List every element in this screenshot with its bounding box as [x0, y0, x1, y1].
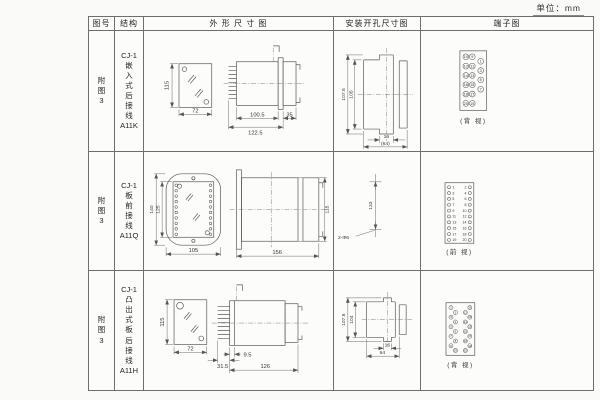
svg-text:18: 18: [464, 339, 468, 343]
svg-text:16: 16: [464, 83, 468, 87]
svg-text:17: 17: [452, 232, 456, 236]
hole-pitch: 133 2-Φ6: [338, 174, 381, 241]
dim-label: 16: [385, 342, 391, 348]
view-caption: (前 视): [446, 247, 472, 256]
svg-text:17: 17: [470, 92, 474, 96]
svg-text:1: 1: [450, 306, 452, 310]
fig-label-row1: 附 图 3: [89, 31, 115, 152]
dim-label: (64): [381, 141, 390, 147]
outline-drawing-a11q: 140 125 105 156 115: [144, 152, 333, 270]
svg-text:5: 5: [450, 325, 452, 329]
unit-label: 单位：mm: [533, 2, 584, 16]
dimension-table: 图号 结构 外 形 尺 寸 图 安装开孔尺寸图 端子图 附 图 3 CJ-1 嵌…: [88, 16, 594, 391]
outline-cell-row2: 140 125 105 156 115: [144, 152, 334, 271]
terminal-circles: 11121314151617181920: [463, 306, 471, 353]
fig-label-row3: 附 图 3: [89, 271, 115, 391]
terminal-circles: 2468101214161820: [462, 185, 471, 242]
svg-text:13: 13: [452, 221, 456, 225]
dim-label: 72: [192, 108, 198, 114]
dim-label: 126: [260, 364, 270, 370]
hole-note: 2-Φ6: [338, 235, 349, 241]
svg-text:1: 1: [480, 60, 482, 64]
svg-text:15: 15: [470, 83, 474, 87]
svg-text:5: 5: [480, 78, 482, 82]
svg-text:11: 11: [452, 215, 456, 219]
svg-text:7: 7: [450, 334, 452, 338]
side-view: 100.5 35 122.5: [224, 46, 305, 137]
terminal-stud-column: [175, 184, 212, 236]
outline-cell-row3: 115 72 31.5 9.5 126: [144, 271, 334, 391]
svg-text:7: 7: [480, 88, 482, 92]
terminal-cell-row3: 12345678910 11121314151617181920 (背 视): [421, 271, 594, 391]
svg-text:13: 13: [468, 315, 472, 319]
outline-drawing-a11h: 115 72 31.5 9.5 126: [144, 271, 333, 390]
svg-text:11: 11: [468, 306, 471, 310]
mount-cell-row2: 133 2-Φ6: [334, 152, 421, 271]
struct-label-row2: CJ-1 板 前 接 线 A11Q: [115, 152, 144, 271]
svg-text:9: 9: [450, 344, 452, 348]
svg-text:2: 2: [455, 310, 457, 314]
dim-label: 125: [156, 205, 162, 213]
svg-text:20: 20: [464, 102, 468, 106]
svg-text:8: 8: [464, 203, 466, 207]
svg-text:6: 6: [464, 197, 466, 201]
dim-label: 16: [384, 134, 390, 140]
svg-text:3: 3: [480, 69, 482, 73]
dim-label: 104: [349, 315, 355, 323]
svg-text:15: 15: [452, 226, 456, 230]
svg-text:14: 14: [462, 221, 466, 225]
mount-cell-row1: 107.5 105 16 (64): [334, 31, 421, 152]
terminal-circles: 135791113151719: [448, 185, 457, 242]
dim-label: 156: [272, 250, 282, 256]
svg-text:8: 8: [455, 339, 457, 343]
svg-text:10: 10: [462, 209, 466, 213]
dim-label: 100.5: [250, 112, 264, 118]
header-mount: 安装开孔尺寸图: [334, 17, 421, 31]
cutout-profile: 107.5 105 16 (64): [341, 48, 413, 149]
dim-label: 140: [149, 205, 155, 213]
terminal-diagram-a11h: 12345678910 11121314151617181920 (背 视): [421, 271, 593, 390]
dim-label: 122.5: [248, 131, 262, 137]
terminal-circles: 12345678910: [449, 306, 457, 353]
mount-drawing-a11h: 107.5 104 16 64: [334, 271, 420, 390]
struct-label-row3: CJ-1 凸 出 式 板 后 接 线 A11H: [115, 271, 144, 391]
svg-text:12: 12: [464, 310, 468, 314]
dim-label: 115: [325, 205, 331, 213]
svg-text:9: 9: [452, 209, 454, 213]
svg-text:6: 6: [455, 329, 457, 333]
mount-drawing-a11q: 133 2-Φ6: [334, 152, 420, 270]
svg-text:2: 2: [464, 185, 466, 189]
front-view: 115 72: [165, 64, 212, 117]
outline-cell-row1: 115 72 100.5 35 122.5: [144, 31, 334, 152]
front-view: 115 72: [160, 300, 207, 355]
header-fig: 图号: [89, 17, 115, 31]
dim-label: 31.5: [217, 364, 228, 370]
terminal-diagram-a11k: 101214161820 91113151719 1357 (背 视): [421, 31, 593, 151]
svg-text:3: 3: [452, 191, 454, 195]
front-view: 140 125 105: [149, 174, 220, 256]
terminal-circles: 1357: [478, 58, 484, 92]
svg-text:12: 12: [462, 215, 466, 219]
svg-text:10: 10: [464, 55, 468, 59]
struct-label-row1: CJ-1 嵌 入 式 后 接 线 A11K: [115, 31, 144, 152]
cutout-profile: 107.5 104 16 64: [341, 292, 412, 358]
view-caption: (背 视): [460, 116, 486, 125]
svg-text:10: 10: [454, 349, 458, 353]
svg-text:19: 19: [468, 344, 472, 348]
svg-text:15: 15: [468, 325, 472, 329]
svg-text:5: 5: [452, 197, 454, 201]
mount-drawing-a11k: 107.5 105 16 (64): [334, 31, 420, 151]
dim-label: 35: [286, 112, 292, 118]
fig-label-row2: 附 图 3: [89, 152, 115, 271]
svg-text:19: 19: [452, 238, 456, 242]
svg-text:20: 20: [464, 349, 468, 353]
dim-label: 133: [368, 201, 374, 209]
dim-label: 107.5: [341, 313, 347, 326]
svg-text:1: 1: [452, 185, 454, 189]
svg-text:16: 16: [462, 226, 466, 230]
terminal-diagram-a11q: 135791113151719 2468101214161820 (前 视): [421, 152, 593, 270]
outline-drawing-a11k: 115 72 100.5 35 122.5: [144, 31, 333, 151]
view-caption: (背 视): [447, 360, 473, 369]
svg-text:7: 7: [452, 203, 454, 207]
terminal-cell-row2: 135791113151719 2468101214161820 (前 视): [421, 152, 594, 271]
side-view: 31.5 9.5 126: [208, 285, 308, 373]
dim-label: 64: [380, 350, 386, 356]
svg-text:13: 13: [470, 74, 474, 78]
side-view: 156 115: [230, 170, 331, 258]
dim-label: 105: [348, 90, 354, 98]
svg-text:20: 20: [462, 238, 466, 242]
svg-text:12: 12: [464, 64, 468, 68]
svg-text:18: 18: [464, 92, 468, 96]
svg-text:9: 9: [471, 55, 473, 59]
dim-label: 107.5: [341, 88, 347, 101]
dim-label: 72: [187, 346, 193, 352]
header-struct: 结构: [115, 17, 144, 31]
svg-text:17: 17: [468, 334, 472, 338]
svg-text:3: 3: [450, 315, 452, 319]
terminal-circles: 91113151719: [469, 54, 475, 106]
svg-text:11: 11: [470, 64, 474, 68]
svg-text:19: 19: [470, 102, 474, 106]
dim-label: 115: [160, 317, 166, 326]
terminal-circles: 101214161820: [463, 54, 469, 106]
dim-label: 115: [165, 81, 171, 90]
mount-cell-row3: 107.5 104 16 64: [334, 271, 421, 391]
svg-text:4: 4: [464, 191, 466, 195]
header-outline: 外 形 尺 寸 图: [144, 17, 334, 31]
svg-text:14: 14: [464, 320, 468, 324]
svg-text:14: 14: [464, 74, 468, 78]
svg-text:4: 4: [455, 320, 457, 324]
terminal-cell-row1: 101214161820 91113151719 1357 (背 视): [421, 31, 594, 152]
svg-text:18: 18: [462, 232, 466, 236]
header-terminal: 端子图: [421, 17, 594, 31]
dim-label: 9.5: [243, 352, 251, 358]
dim-label: 105: [189, 248, 199, 254]
svg-text:16: 16: [464, 329, 468, 333]
